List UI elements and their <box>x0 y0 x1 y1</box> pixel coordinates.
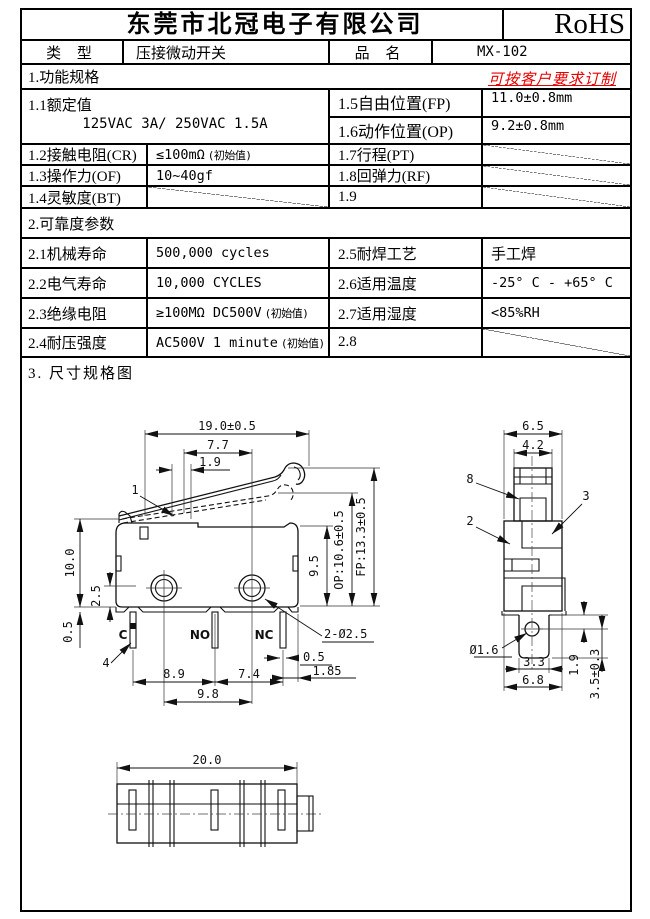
rel-row-mech: 2.1机械寿命 500,000 cycles 2.5耐焊工艺 手工焊 <box>22 239 630 269</box>
part-3-leader <box>552 504 582 534</box>
terminal-nc-label: NC <box>255 628 274 642</box>
dim-op-height-label: OP:10.6±0.5 <box>332 510 346 589</box>
part-1-label: 1 <box>131 483 138 497</box>
dim-total-width-label: 19.0±0.5 <box>198 419 256 433</box>
section-3-title: 3. 尺寸规格图 <box>28 362 134 383</box>
r28-label: 2.8 <box>330 329 483 356</box>
dim-hole-pitch-label: 9.8 <box>197 687 219 701</box>
dim-button-width-label: 4.2 <box>522 438 544 452</box>
document-frame: 东莞市北冠电子有限公司 RoHS 类 型 压接微动开关 品 名 MX-102 1… <box>20 8 632 912</box>
section-2-row: 2.可靠度参数 <box>22 209 630 239</box>
custom-order-note: 可按客户要求订制 <box>488 68 616 89</box>
wv-value-text: AC500V 1 minute <box>156 335 278 351</box>
rated-label: 1.1额定值 <box>28 94 92 115</box>
rated-value: 125VAC 3A/ 250VAC 1.5A <box>22 116 328 132</box>
right-latch-slot <box>293 556 298 571</box>
part-4-label: 4 <box>102 656 109 670</box>
mount-holes-label: 2-Ø2.5 <box>324 627 367 641</box>
dim-lever-len-label: 7.7 <box>207 438 229 452</box>
rel-row-elec: 2.2电气寿命 10,000 CYCLES 2.6适用温度 -25° C - +… <box>22 269 630 299</box>
part-2-leader <box>476 527 510 544</box>
bt-label: 1.4灵敏度(BT) <box>22 187 148 207</box>
hole-diameter-label: Ø1.6 <box>470 643 499 657</box>
lever-free-top <box>119 463 305 516</box>
side-protrusion <box>297 796 313 831</box>
ins-label: 2.3绝缘电阻 <box>22 299 148 327</box>
cr-note: (初始值) <box>208 147 252 163</box>
dim-hole-offset-label: 2.5 <box>89 585 103 607</box>
terminal-slot <box>211 790 218 830</box>
dim-pitch-c-no-label: 8.9 <box>163 667 185 681</box>
spec-row-bt: 1.4灵敏度(BT) 1.9 <box>22 187 630 209</box>
mount-tab <box>519 615 549 658</box>
terminal-nc <box>280 612 286 648</box>
r19-label: 1.9 <box>330 187 483 207</box>
dim-hole-height-label: 1.9 <box>567 654 581 676</box>
product-name-value: MX-102 <box>433 41 630 63</box>
dim-total-length-label: 20.0 <box>193 753 222 767</box>
bottom-body <box>117 784 297 843</box>
rated-cell: 1.1额定值 125VAC 3A/ 250VAC 1.5A <box>22 90 330 143</box>
dim-nc-edge-offset-label: 1.85 <box>313 664 342 678</box>
type-label: 类 型 <box>22 41 124 63</box>
wv-value: AC500V 1 minute(初始值) <box>148 329 330 356</box>
rf-label: 1.8回弹力(RF) <box>330 166 483 185</box>
cr-value-text: ≤100mΩ <box>156 147 205 163</box>
type-value: 压接微动开关 <box>124 41 330 63</box>
solder-label: 2.5耐焊工艺 <box>330 239 483 267</box>
rohs-mark: RoHS <box>502 10 630 39</box>
bottom-view: 20.0 <box>108 753 322 847</box>
ins-value-text: ≥100MΩ DC500V <box>156 305 262 321</box>
dim-inner-height-label: 9.5 <box>307 555 321 577</box>
left-latch-slot <box>116 556 121 571</box>
body-detail <box>522 586 562 611</box>
cr-label: 1.2接触电阻(CR) <box>22 145 148 164</box>
fp-value: 11.0±0.8mm <box>483 90 630 116</box>
terminal-c <box>130 612 136 648</box>
section-3-row: 3. 尺寸规格图 <box>22 358 630 386</box>
front-view: 19.0±0.5 7.7 1.9 1 10.0 2.5 0.5 9.5 <box>61 419 380 706</box>
temp-value: -25° C - +65° C <box>483 269 630 297</box>
r19-value-blank <box>483 187 630 207</box>
rf-value-blank <box>483 166 630 185</box>
spec-row-cr: 1.2接触电阻(CR) ≤100mΩ(初始值) 1.7行程(PT) <box>22 145 630 166</box>
part-4-leader <box>111 643 131 663</box>
of-value: 10~40gf <box>148 166 330 185</box>
lever-pressed-bottom <box>123 500 266 523</box>
rel-row-wv: 2.4耐压强度 AC500V 1 minute(初始值) 2.8 <box>22 329 630 358</box>
dim-tab-height-label: 3.5±0.3 <box>588 649 602 700</box>
header-row: 东莞市北冠电子有限公司 RoHS <box>22 10 630 41</box>
hum-value: <85%RH <box>483 299 630 327</box>
hole-diameter-leader <box>502 633 527 648</box>
side-body <box>504 521 562 611</box>
pt-value-blank <box>483 145 630 164</box>
ins-note: (初始值) <box>265 305 309 321</box>
mount-holes-leader <box>265 599 322 636</box>
of-label: 1.3操作力(OF) <box>22 166 148 185</box>
dimension-drawings: 19.0±0.5 7.7 1.9 1 10.0 2.5 0.5 9.5 <box>22 386 630 910</box>
spec-row-of: 1.3操作力(OF) 10~40gf 1.8回弹力(RF) <box>22 166 630 187</box>
terminal-slot <box>129 790 136 830</box>
section-1-row: 1.功能规格 可按客户要求订制 <box>22 65 630 90</box>
switch-body-outline <box>116 523 298 607</box>
ins-value: ≥100MΩ DC500V(初始值) <box>148 299 330 327</box>
product-name-label: 品 名 <box>330 41 433 63</box>
terminal-c-label: C <box>119 628 128 642</box>
rated-block: 1.1额定值 125VAC 3A/ 250VAC 1.5A 1.5自由位置(FP… <box>22 90 630 145</box>
dim-base-thickness-label: 0.5 <box>61 621 75 643</box>
elec-label: 2.2电气寿命 <box>22 269 148 297</box>
datasheet-page: { "header": { "company": "东莞市北冠电子有限公司", … <box>0 0 650 919</box>
dim-pitch-no-nc-label: 7.4 <box>238 667 260 681</box>
bt-value-blank <box>148 187 330 207</box>
terminal-c-mark <box>130 623 136 629</box>
op-label: 1.6动作位置(OP) <box>330 118 483 144</box>
op-value: 9.2±0.8mm <box>483 118 630 144</box>
button-neck <box>520 498 546 521</box>
wv-label: 2.4耐压强度 <box>22 329 148 356</box>
part-2-label: 2 <box>466 514 473 528</box>
mech-label: 2.1机械寿命 <box>22 239 148 267</box>
fp-label: 1.5自由位置(FP) <box>330 90 483 116</box>
base-strip <box>116 607 298 612</box>
side-view: 6.5 4.2 8 2 3 Ø1.6 3.3 6.8 <box>466 419 608 699</box>
solder-value: 手工焊 <box>483 239 630 267</box>
rel-row-ins: 2.3绝缘电阻 ≥100MΩ DC500V(初始值) 2.7适用湿度 <85%R… <box>22 299 630 329</box>
terminal-slot <box>278 790 285 830</box>
company-title: 东莞市北冠电子有限公司 <box>22 10 502 39</box>
section-2-title: 2.可靠度参数 <box>28 213 114 234</box>
cr-value: ≤100mΩ(初始值) <box>148 145 330 164</box>
terminal-no-label: NO <box>190 628 210 642</box>
type-row: 类 型 压接微动开关 品 名 MX-102 <box>22 41 630 65</box>
part-8-leader <box>476 483 519 499</box>
dim-side-width-label: 6.5 <box>522 419 544 433</box>
mech-value: 500,000 cycles <box>148 239 330 267</box>
part-8-label: 8 <box>466 472 473 486</box>
dim-fp-height-label: FP:13.3±0.5 <box>354 497 368 576</box>
dim-tab-width-label: 3.3 <box>523 655 545 669</box>
section-1-title: 1.功能规格 <box>28 66 99 87</box>
elec-value: 10,000 CYCLES <box>148 269 330 297</box>
dim-terminal-thickness-label: 0.5 <box>303 650 325 664</box>
lever-pressed-top <box>122 485 293 519</box>
hum-label: 2.7适用湿度 <box>330 299 483 327</box>
dim-base-width-label: 6.8 <box>522 673 544 687</box>
top-slot <box>140 527 148 539</box>
body-detail <box>522 521 562 548</box>
dim-lever-offset-label: 1.9 <box>199 455 221 469</box>
temp-label: 2.6适用温度 <box>330 269 483 297</box>
drawing-canvas: 19.0±0.5 7.7 1.9 1 10.0 2.5 0.5 9.5 <box>22 386 630 910</box>
position-cells: 1.5自由位置(FP) 11.0±0.8mm 1.6动作位置(OP) 9.2±0… <box>330 90 630 143</box>
r28-value-blank <box>483 329 630 356</box>
dim-body-height-label: 10.0 <box>63 549 77 578</box>
body-detail <box>504 559 539 571</box>
wv-note: (初始值) <box>281 335 325 351</box>
pt-label: 1.7行程(PT) <box>330 145 483 164</box>
part-3-label: 3 <box>582 489 589 503</box>
